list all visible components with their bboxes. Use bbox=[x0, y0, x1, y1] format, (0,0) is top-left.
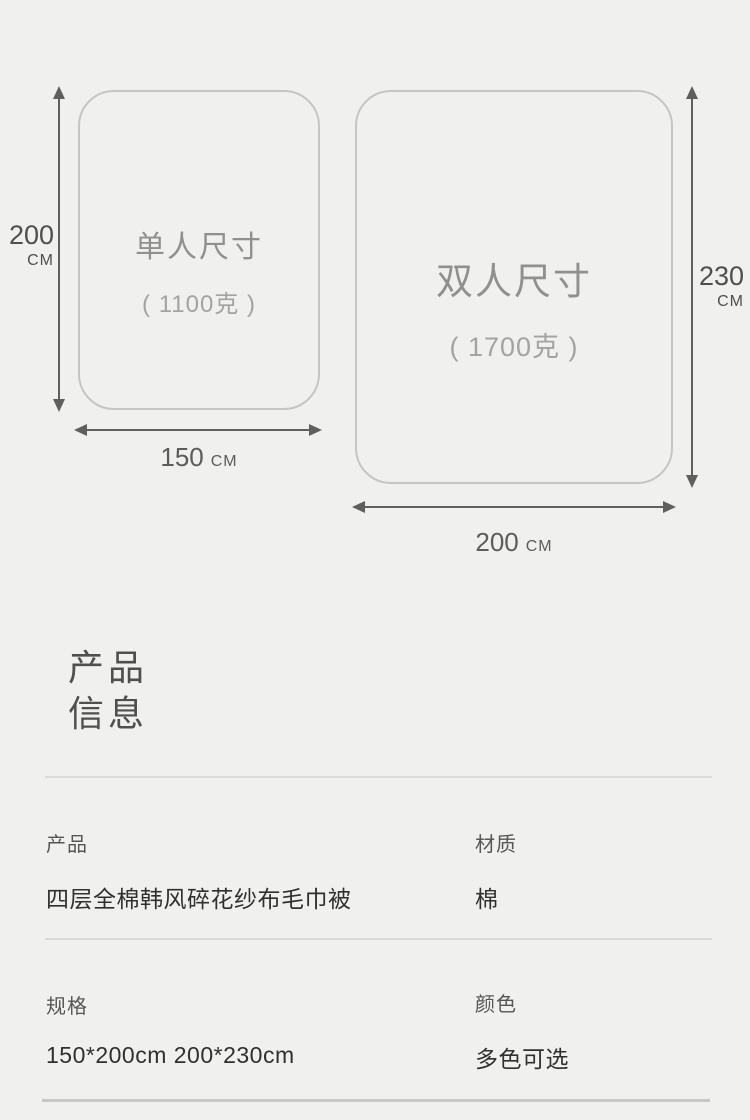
double-size-box-content: 双人尺寸 ( 1700克 ) bbox=[436, 251, 592, 364]
double-size-weight: ( 1700克 ) bbox=[436, 325, 592, 364]
double-width-arrow-icon bbox=[352, 496, 676, 518]
double-width-label: 200CM bbox=[355, 527, 673, 558]
single-width-label: 150CM bbox=[78, 442, 320, 473]
double-width-value: 200 bbox=[475, 527, 518, 557]
product-info-heading-line1: 产品 bbox=[68, 645, 148, 691]
double-width-unit: CM bbox=[526, 538, 553, 555]
single-height-unit: CM bbox=[0, 253, 54, 269]
product-info-heading-line2: 信息 bbox=[68, 691, 148, 737]
field-spec: 规格 150*200cm 200*230cm bbox=[46, 990, 295, 1069]
single-size-title: 单人尺寸 bbox=[135, 222, 263, 266]
field-spec-label: 规格 bbox=[46, 990, 295, 1019]
single-width-value: 150 bbox=[160, 442, 203, 472]
double-size-title: 双人尺寸 bbox=[436, 251, 592, 305]
field-product-label: 产品 bbox=[46, 828, 352, 857]
single-height-label: 200 CM bbox=[0, 222, 54, 269]
field-product-value: 四层全棉韩风碎花纱布毛巾被 bbox=[46, 880, 352, 914]
field-material: 材质 棉 bbox=[475, 828, 517, 914]
divider-thick bbox=[42, 1099, 710, 1102]
double-height-unit: CM bbox=[698, 294, 744, 310]
single-width-unit: CM bbox=[211, 453, 238, 470]
field-spec-value: 150*200cm 200*230cm bbox=[46, 1042, 295, 1069]
divider bbox=[45, 938, 712, 940]
field-material-value: 棉 bbox=[475, 880, 517, 914]
divider bbox=[45, 776, 712, 778]
field-color-value: 多色可选 bbox=[475, 1040, 569, 1074]
field-material-label: 材质 bbox=[475, 828, 517, 857]
field-color-label: 颜色 bbox=[475, 988, 569, 1017]
product-detail-page: 单人尺寸 ( 1100克 ) 200 CM 150CM 双人 bbox=[0, 0, 750, 1120]
field-product: 产品 四层全棉韩风碎花纱布毛巾被 bbox=[46, 828, 352, 914]
single-width-arrow-icon bbox=[74, 419, 322, 441]
double-height-value: 230 bbox=[698, 263, 744, 290]
single-size-weight: ( 1100克 ) bbox=[135, 284, 263, 319]
single-size-box-content: 单人尺寸 ( 1100克 ) bbox=[135, 222, 263, 319]
single-height-value: 200 bbox=[0, 222, 54, 249]
double-height-label: 230 CM bbox=[698, 263, 744, 310]
field-color: 颜色 多色可选 bbox=[475, 988, 569, 1074]
single-size-box: 单人尺寸 ( 1100克 ) bbox=[78, 90, 320, 410]
double-size-box: 双人尺寸 ( 1700克 ) bbox=[355, 90, 673, 484]
product-info-heading: 产品 信息 bbox=[68, 645, 148, 737]
